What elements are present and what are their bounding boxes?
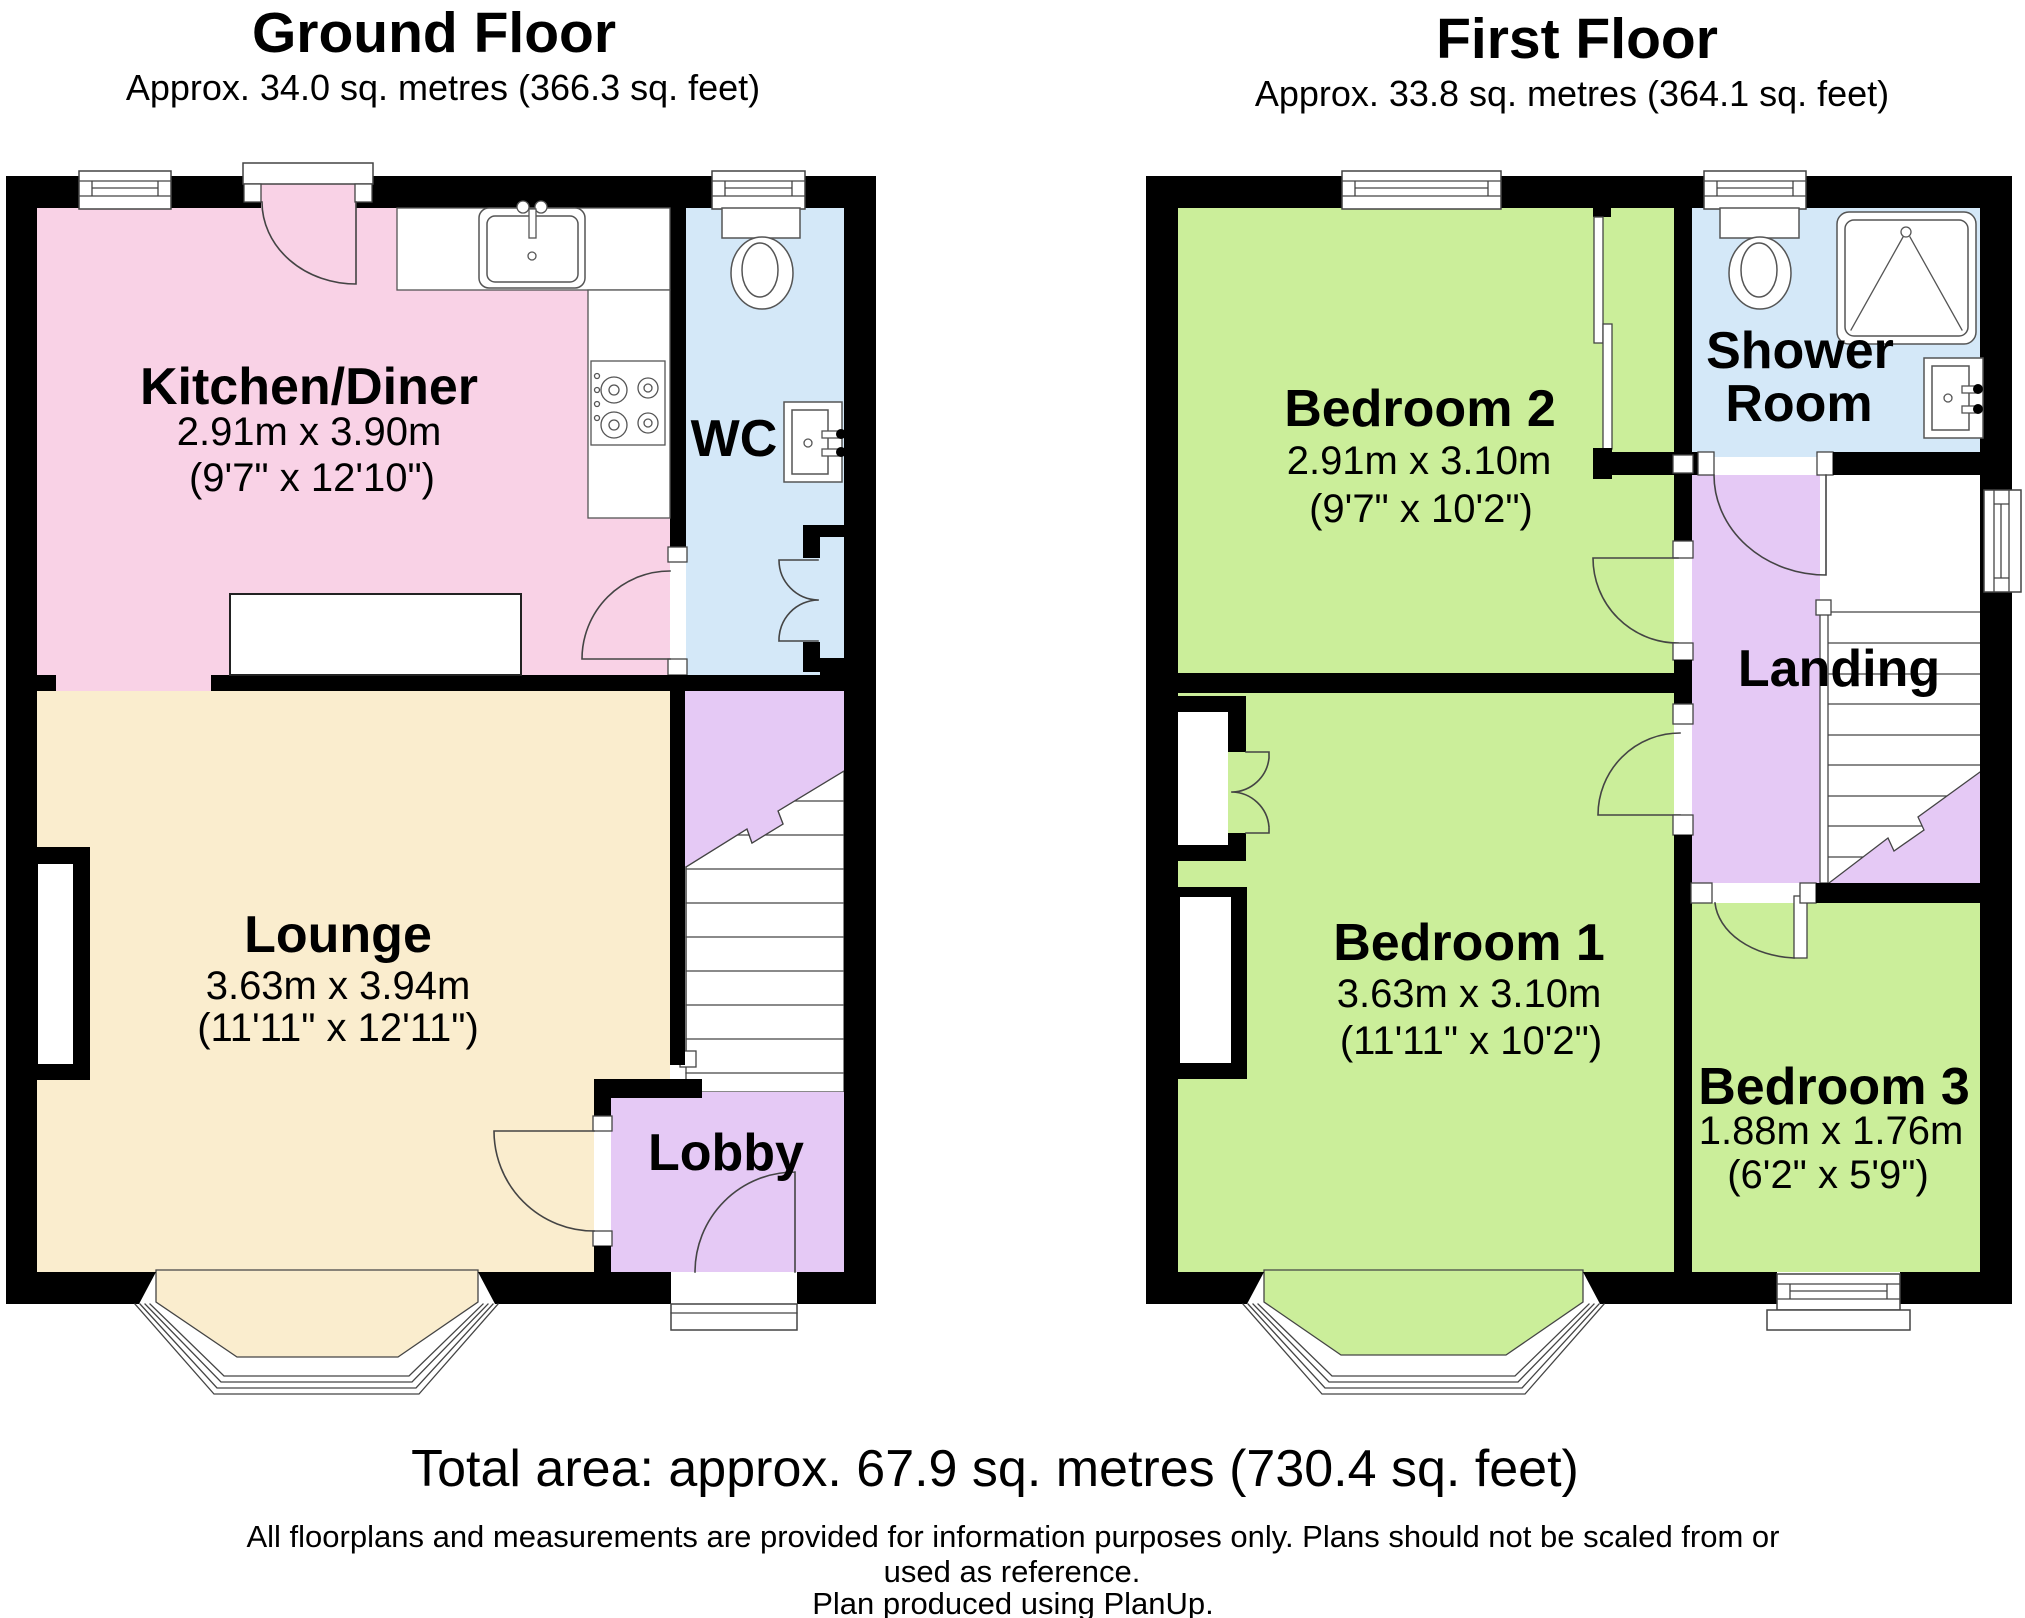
svg-text:Lobby: Lobby (648, 1124, 804, 1182)
svg-text:Approx. 33.8 sq. metres (364.1: Approx. 33.8 sq. metres (364.1 sq. feet) (1255, 73, 1889, 114)
svg-text:Bedroom 2: Bedroom 2 (1284, 380, 1556, 438)
svg-text:Room: Room (1725, 375, 1872, 433)
svg-text:1.88m x 1.76m: 1.88m x 1.76m (1699, 1109, 1964, 1153)
svg-text:(6'2" x 5'9"): (6'2" x 5'9") (1727, 1153, 1929, 1197)
svg-text:2.91m x 3.10m: 2.91m x 3.10m (1287, 439, 1552, 483)
svg-text:All floorplans and measurement: All floorplans and measurements are prov… (246, 1519, 1779, 1554)
svg-text:Kitchen/Diner: Kitchen/Diner (140, 358, 478, 416)
svg-text:Landing: Landing (1738, 640, 1940, 698)
svg-text:(11'11" x 10'2"): (11'11" x 10'2") (1340, 1019, 1602, 1063)
svg-text:Bedroom 3: Bedroom 3 (1698, 1058, 1970, 1116)
svg-text:used as reference.: used as reference. (884, 1554, 1141, 1589)
svg-text:Plan produced using PlanUp.: Plan produced using PlanUp. (812, 1586, 1214, 1618)
svg-text:Bedroom 1: Bedroom 1 (1333, 914, 1605, 972)
svg-text:First Floor: First Floor (1436, 7, 1718, 71)
svg-text:3.63m x 3.94m: 3.63m x 3.94m (206, 964, 471, 1008)
svg-text:(9'7" x 12'10"): (9'7" x 12'10") (189, 456, 435, 500)
svg-text:Total area: approx. 67.9 sq. m: Total area: approx. 67.9 sq. metres (730… (411, 1440, 1579, 1498)
svg-text:(9'7" x 10'2"): (9'7" x 10'2") (1309, 487, 1533, 531)
svg-text:Ground Floor: Ground Floor (252, 1, 616, 65)
svg-text:(11'11" x 12'11"): (11'11" x 12'11") (197, 1006, 479, 1050)
svg-text:2.91m x 3.90m: 2.91m x 3.90m (177, 410, 442, 454)
svg-text:WC: WC (691, 410, 778, 468)
svg-text:Lounge: Lounge (244, 906, 432, 964)
svg-text:3.63m x 3.10m: 3.63m x 3.10m (1337, 972, 1602, 1016)
svg-text:Approx. 34.0 sq. metres (366.3: Approx. 34.0 sq. metres (366.3 sq. feet) (126, 67, 760, 108)
svg-text:Shower: Shower (1706, 322, 1894, 380)
